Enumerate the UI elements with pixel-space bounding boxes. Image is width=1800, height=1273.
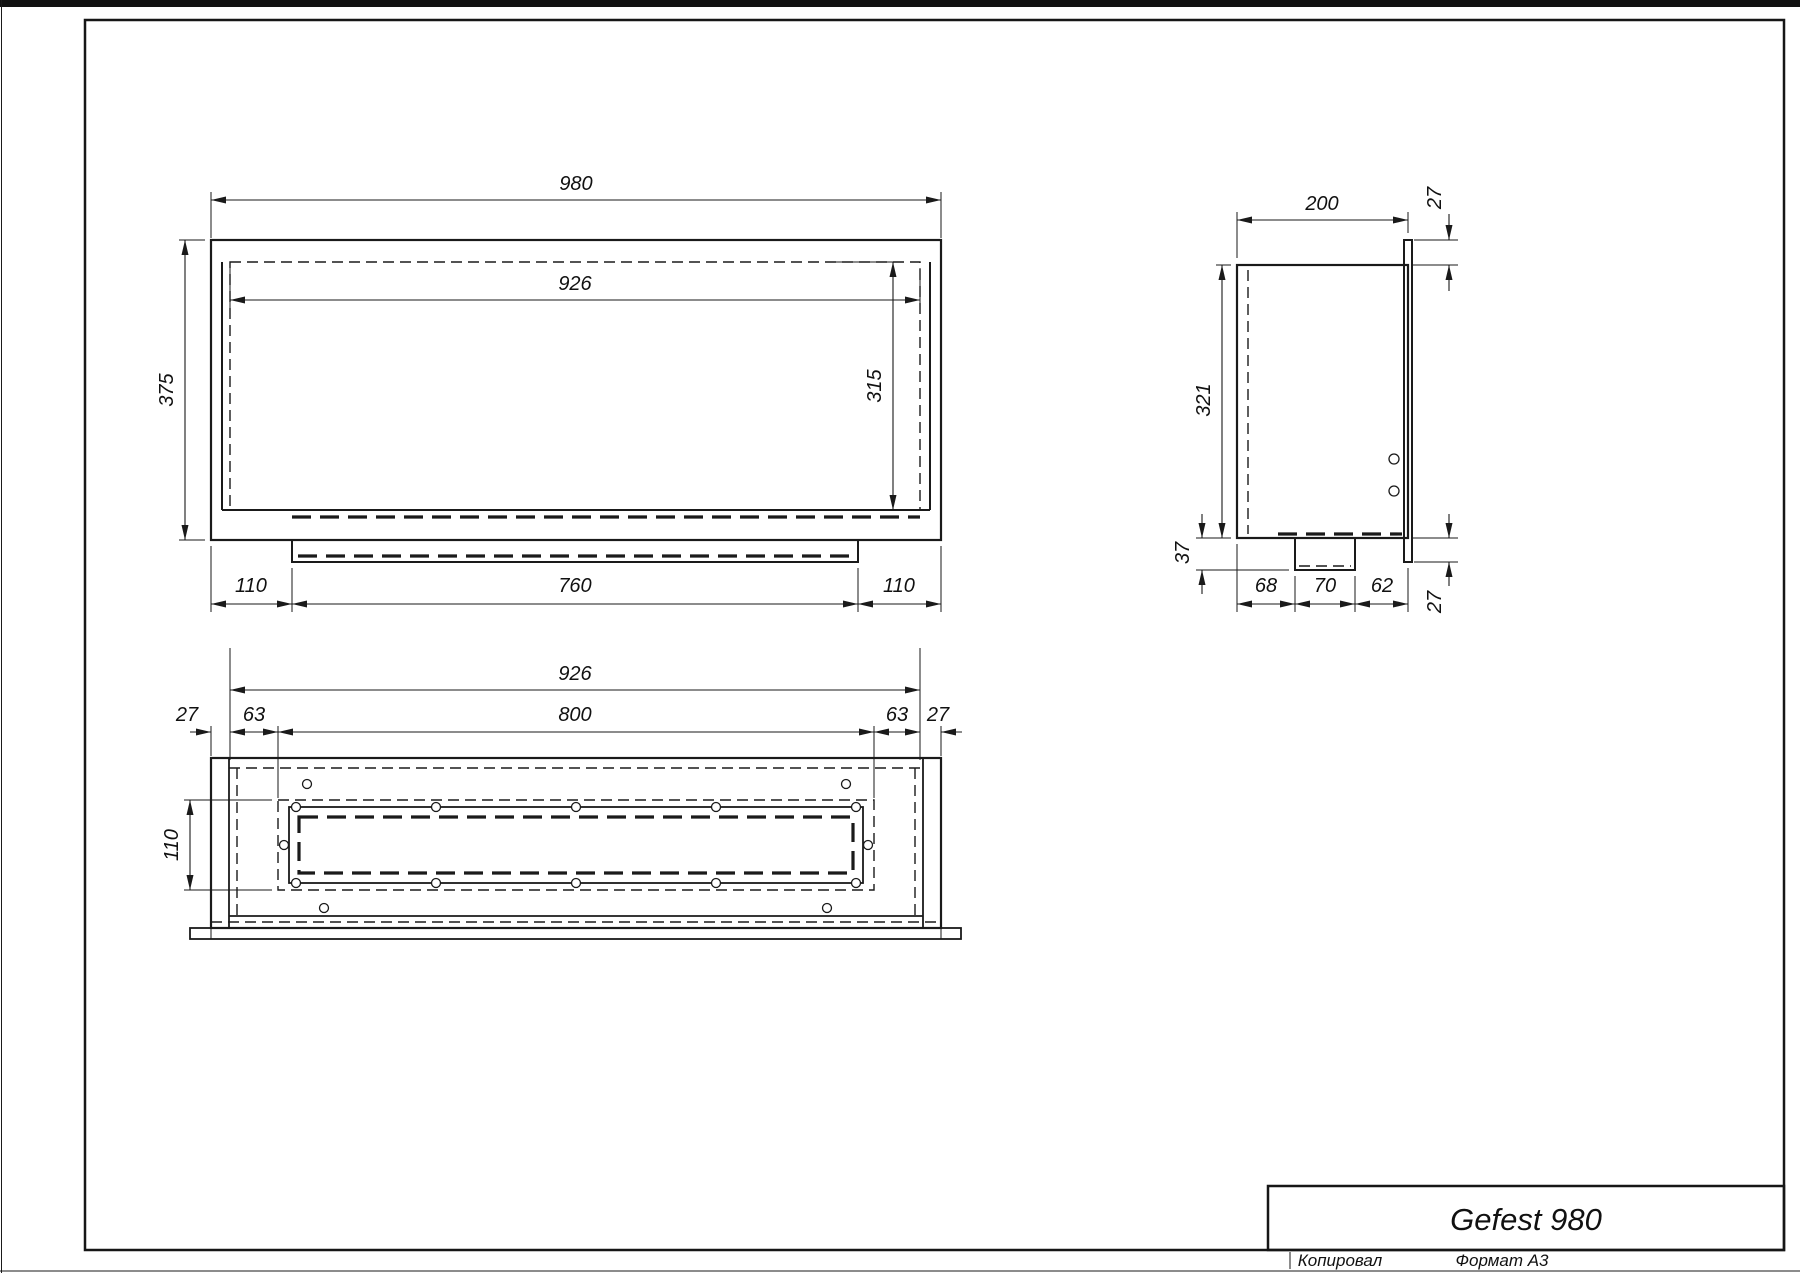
- dim-plan-inner-width: 926: [558, 663, 592, 685]
- dim-front-inner-width: 926: [558, 273, 592, 295]
- slot-screw-hole: [852, 803, 861, 812]
- slot-outer-hidden: [278, 800, 874, 890]
- title-block: Gefest 980 Копировал Формат A3: [1268, 1186, 1784, 1270]
- dim-side-seg-mid: 70: [1314, 575, 1336, 597]
- plan-front-flange-strip: [190, 928, 961, 939]
- front-view: 980 926 375 315 110 760 110: [156, 173, 941, 612]
- slot-screw-hole: [572, 879, 581, 888]
- dim-front-bottom-center: 760: [558, 575, 591, 597]
- product-title: Gefest 980: [1450, 1202, 1602, 1237]
- dim-plan-edge-left: 27: [175, 704, 199, 726]
- sheet-frame: [0, 0, 1800, 1273]
- dim-front-overall-width: 980: [559, 173, 592, 195]
- plan-view: 926 800 27 63 63 27 110: [161, 648, 962, 939]
- top-edge-strip: [0, 0, 1800, 7]
- side-tray: [1295, 538, 1355, 570]
- side-body-outline: [1237, 265, 1408, 538]
- dim-plan-inset-left: 63: [243, 704, 265, 726]
- copied-by-label: Копировал: [1298, 1251, 1383, 1270]
- dim-front-overall-height: 375: [156, 372, 178, 406]
- plate-screw-hole: [320, 904, 329, 913]
- dim-front-bottom-right: 110: [883, 575, 915, 597]
- plan-outline: [211, 758, 941, 928]
- drawing-canvas: 980 926 375 315 110 760 110: [0, 0, 1800, 1273]
- side-mount-hole: [1389, 486, 1399, 496]
- plate-screw-hole: [823, 904, 832, 913]
- slot-screw-hole: [712, 879, 721, 888]
- slot-screw-hole: [280, 841, 289, 850]
- dim-side-flange-top: 27: [1424, 186, 1446, 210]
- side-view: 200 27 321 37 68 70 62 27: [1172, 186, 1458, 614]
- slot-screw-hole: [292, 879, 301, 888]
- plate-screw-hole: [842, 780, 851, 789]
- side-mount-hole: [1389, 454, 1399, 464]
- front-hidden-body: [230, 262, 920, 510]
- dim-side-flange-bottom: 27: [1424, 590, 1446, 614]
- dim-front-inner-height: 315: [864, 368, 886, 402]
- drawing-sheet: 980 926 375 315 110 760 110: [0, 0, 1800, 1273]
- slot-screw-hole: [712, 803, 721, 812]
- format-label: Формат A3: [1455, 1251, 1549, 1270]
- slot-screw-hole: [852, 879, 861, 888]
- dim-plan-slot-width: 110: [161, 829, 183, 861]
- dim-side-height: 321: [1193, 383, 1215, 416]
- slot-screw-hole: [864, 841, 873, 850]
- front-tray-lip: [292, 540, 858, 562]
- dim-plan-edge-right: 27: [926, 704, 950, 726]
- slot-screw-hole: [432, 803, 441, 812]
- dim-side-tray-drop: 37: [1172, 541, 1194, 564]
- dim-front-bottom-left: 110: [235, 575, 267, 597]
- dim-plan-slot-length: 800: [558, 704, 591, 726]
- slot-screw-hole: [292, 803, 301, 812]
- plate-screw-hole: [303, 780, 312, 789]
- dim-plan-inset-right: 63: [886, 704, 908, 726]
- dim-side-seg-front: 68: [1255, 575, 1277, 597]
- drawing-frame: [85, 20, 1784, 1250]
- dim-side-seg-back: 62: [1371, 575, 1393, 597]
- slot-screw-hole: [572, 803, 581, 812]
- slot-inner-hidden: [299, 817, 853, 873]
- slot-screw-hole: [432, 879, 441, 888]
- dim-side-depth: 200: [1304, 193, 1338, 215]
